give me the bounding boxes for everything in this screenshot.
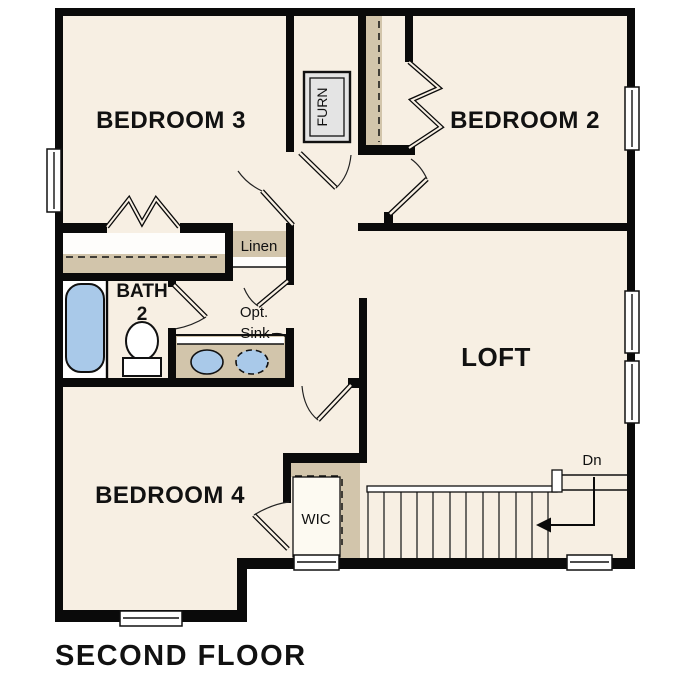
- bedroom4-window: [120, 611, 182, 626]
- wic-shelf-top: [291, 463, 360, 477]
- bathtub: [66, 284, 104, 372]
- loft-window-lower: [625, 361, 639, 423]
- wall-furn-east: [358, 16, 366, 147]
- wall-bedroom2-closet-south: [358, 145, 415, 155]
- wall-wic-north: [283, 453, 367, 463]
- wall-bedroom2-south: [358, 223, 627, 231]
- floor-plan-drawing: BEDROOM 3 BEDROOM 2 LOFT BEDROOM 4 BATH …: [0, 0, 687, 687]
- optional-sink: [236, 350, 268, 374]
- wall-wic-west: [283, 453, 291, 503]
- toilet-bowl: [126, 322, 158, 360]
- bedroom3-window: [47, 149, 61, 212]
- wic-shelf-right: [340, 477, 360, 558]
- wic-window: [294, 555, 339, 570]
- bedroom2-window: [625, 87, 639, 150]
- floor-plan: BEDROOM 3 BEDROOM 2 LOFT BEDROOM 4 BATH …: [0, 0, 687, 687]
- stair-window: [567, 555, 612, 570]
- opt-sink-label-line1: Opt.: [240, 304, 268, 321]
- wall-bath-south: [55, 378, 294, 387]
- linen-label: Linen: [241, 238, 278, 255]
- wall-exterior-left: [55, 8, 63, 622]
- sink: [191, 350, 223, 374]
- wall-vanity-east: [286, 328, 294, 387]
- wall-bedroom3-east: [286, 16, 294, 152]
- furnace-label: FURN: [314, 88, 330, 127]
- wall-linen-west: [225, 223, 233, 281]
- bedroom3-label: BEDROOM 3: [96, 107, 246, 134]
- wall-exterior-top: [55, 8, 635, 16]
- wic-label: WIC: [301, 511, 330, 528]
- bedroom3-closet-shelf-white: [62, 233, 225, 254]
- stair-newel: [552, 470, 562, 492]
- bath-label-line2: 2: [137, 304, 148, 325]
- page-title: SECOND FLOOR: [55, 640, 307, 672]
- wall-loft-west: [359, 298, 367, 463]
- wall-linen-east: [286, 223, 294, 285]
- linen-shelf: [233, 257, 286, 267]
- bath-label-line1: BATH: [116, 281, 167, 302]
- opt-sink-label-line2: Sink: [240, 325, 270, 342]
- bedroom2-label: BEDROOM 2: [450, 107, 600, 134]
- wall-bedroom2-closet-stub: [405, 16, 413, 62]
- stair-railing: [367, 486, 557, 492]
- wall-bedroom3-south-left: [62, 223, 107, 233]
- stairs-dn-label: Dn: [582, 452, 601, 469]
- toilet-tank: [123, 358, 161, 376]
- bedroom4-label: BEDROOM 4: [95, 482, 245, 509]
- loft-label: LOFT: [461, 342, 531, 372]
- loft-window-upper: [625, 291, 639, 353]
- wall-bath-north: [55, 273, 233, 281]
- wall-bath-east-lower: [168, 328, 176, 386]
